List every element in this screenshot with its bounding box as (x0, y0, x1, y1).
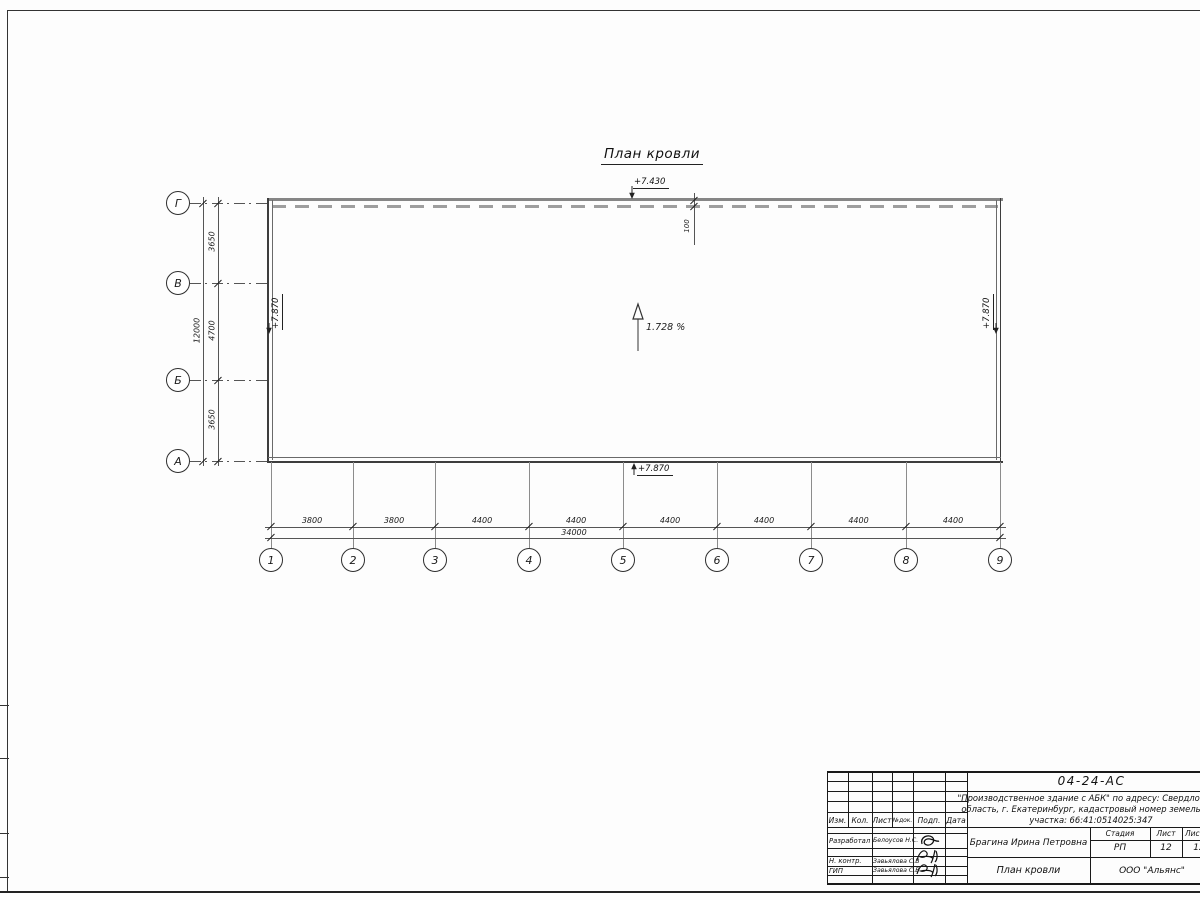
axis-bubble-6: 6 (705, 548, 729, 572)
axis-bubble-8: 8 (894, 548, 918, 572)
drawing-sheet: План кровли 100 +7.430 +7.870 +7.870 +7.… (0, 0, 1200, 900)
project-description-line3: участка: 66:41:0514025:347 (968, 814, 1200, 825)
axis-bubble-1: 1 (259, 548, 283, 572)
frame-tick (0, 705, 9, 706)
axis-line (811, 462, 812, 548)
axis-bubble-4: 4 (517, 548, 541, 572)
titleblock-line (827, 833, 967, 834)
author-name: Брагина Ирина Петровна (967, 829, 1090, 856)
axis-line (353, 462, 354, 548)
axis-bubble-7: 7 (799, 548, 823, 572)
dim-text: 4400 (742, 516, 786, 525)
tb-header-col: Изм. (827, 813, 848, 827)
dim-text-total: 12000 (193, 309, 202, 353)
dim-text: 4400 (837, 516, 881, 525)
stage-label: Стадия (1090, 827, 1150, 840)
roof-parapet-dashed (272, 205, 998, 208)
dim-line (203, 197, 204, 466)
axis-line (435, 462, 436, 548)
axis-bubble-5: 5 (611, 548, 635, 572)
axis-bubble-2: 2 (341, 548, 365, 572)
dim-text: 3650 (208, 220, 217, 264)
elevation-arrow-icon (265, 323, 274, 335)
titleblock-line (827, 856, 967, 857)
titleblock-line (827, 866, 967, 867)
frame-left (7, 10, 8, 892)
offset-dim-text: 100 (683, 215, 691, 237)
company-name: ООО "Альянс" (1090, 858, 1200, 883)
axis-bubble-9: 9 (988, 548, 1012, 572)
sheet-value: 12 (1150, 840, 1182, 856)
signature-belousov (916, 833, 944, 848)
frame-tick (0, 833, 9, 834)
axis-bubble-В: В (166, 271, 190, 295)
titleblock-line (827, 771, 829, 884)
titleblock-line (827, 875, 967, 876)
dim-text: 4400 (648, 516, 692, 525)
sheet-label: Лист (1150, 827, 1182, 840)
dim-text: 3800 (372, 516, 416, 525)
tb-role: Разработал (829, 833, 872, 848)
axis-bubble-Г: Г (166, 191, 190, 215)
tb-header-col: №док. (892, 813, 913, 827)
titleblock-line (848, 771, 849, 827)
dim-text: 4400 (931, 516, 975, 525)
tb-header-col: Кол. (848, 813, 872, 827)
frame-tick (0, 758, 9, 759)
axis-line (529, 462, 530, 548)
tb-name: Завьялова С.В (873, 856, 913, 866)
project-description-line1: "Производственное здание с АБК" по адрес… (968, 792, 1200, 803)
elevation-arrow-icon (992, 323, 1001, 335)
dim-line (265, 527, 1006, 528)
roof-edge-bottom-inner (268, 457, 1001, 458)
axis-bubble-А: А (166, 449, 190, 473)
tb-name: Белоусов Н.С. (873, 833, 913, 848)
elevation-mark-top: +7.430 (633, 177, 669, 189)
slope-label: 1.728 % (646, 322, 685, 333)
titleblock-line (892, 771, 893, 827)
frame-tick (0, 877, 9, 878)
dim-text: 4400 (554, 516, 598, 525)
sheet-title: План кровли (967, 858, 1090, 883)
stage-value: РП (1090, 840, 1150, 856)
axis-line (906, 462, 907, 548)
tb-header-col: Дата (945, 813, 967, 827)
titleblock-line (827, 848, 967, 849)
axis-bubble-3: 3 (423, 548, 447, 572)
dim-text-total: 34000 (552, 528, 596, 537)
tb-name: Завьялова С.В (873, 866, 913, 875)
axis-line (717, 462, 718, 548)
drawing-title: План кровли (601, 146, 703, 165)
dim-text: 4400 (460, 516, 504, 525)
dim-line (265, 538, 1006, 539)
dim-text: 3650 (208, 397, 217, 441)
tb-header-col: Лист (872, 813, 892, 827)
titleblock-line (872, 771, 873, 884)
axis-bubble-Б: Б (166, 368, 190, 392)
tb-header-col: Подп. (913, 813, 945, 827)
frame-bottom (0, 891, 1200, 893)
frame-top (7, 10, 1200, 11)
dim-text: 3800 (290, 516, 334, 525)
signature-zavyalova (914, 861, 946, 878)
sheets-value: 12 (1182, 840, 1200, 856)
project-description-line2: область, г. Екатеринбург, кадастровый но… (968, 803, 1200, 814)
axis-line (623, 462, 624, 548)
dim-line (218, 197, 219, 466)
sheets-label: Листов (1182, 827, 1200, 840)
tb-role: Н. контр. (829, 856, 872, 866)
doc-number: 04-24-АС (967, 772, 1200, 790)
dim-text: 4700 (208, 308, 217, 352)
tb-role: ГИП (829, 866, 872, 875)
titleblock-line (827, 883, 1200, 885)
elevation-mark-bottom: +7.870 (637, 464, 673, 476)
